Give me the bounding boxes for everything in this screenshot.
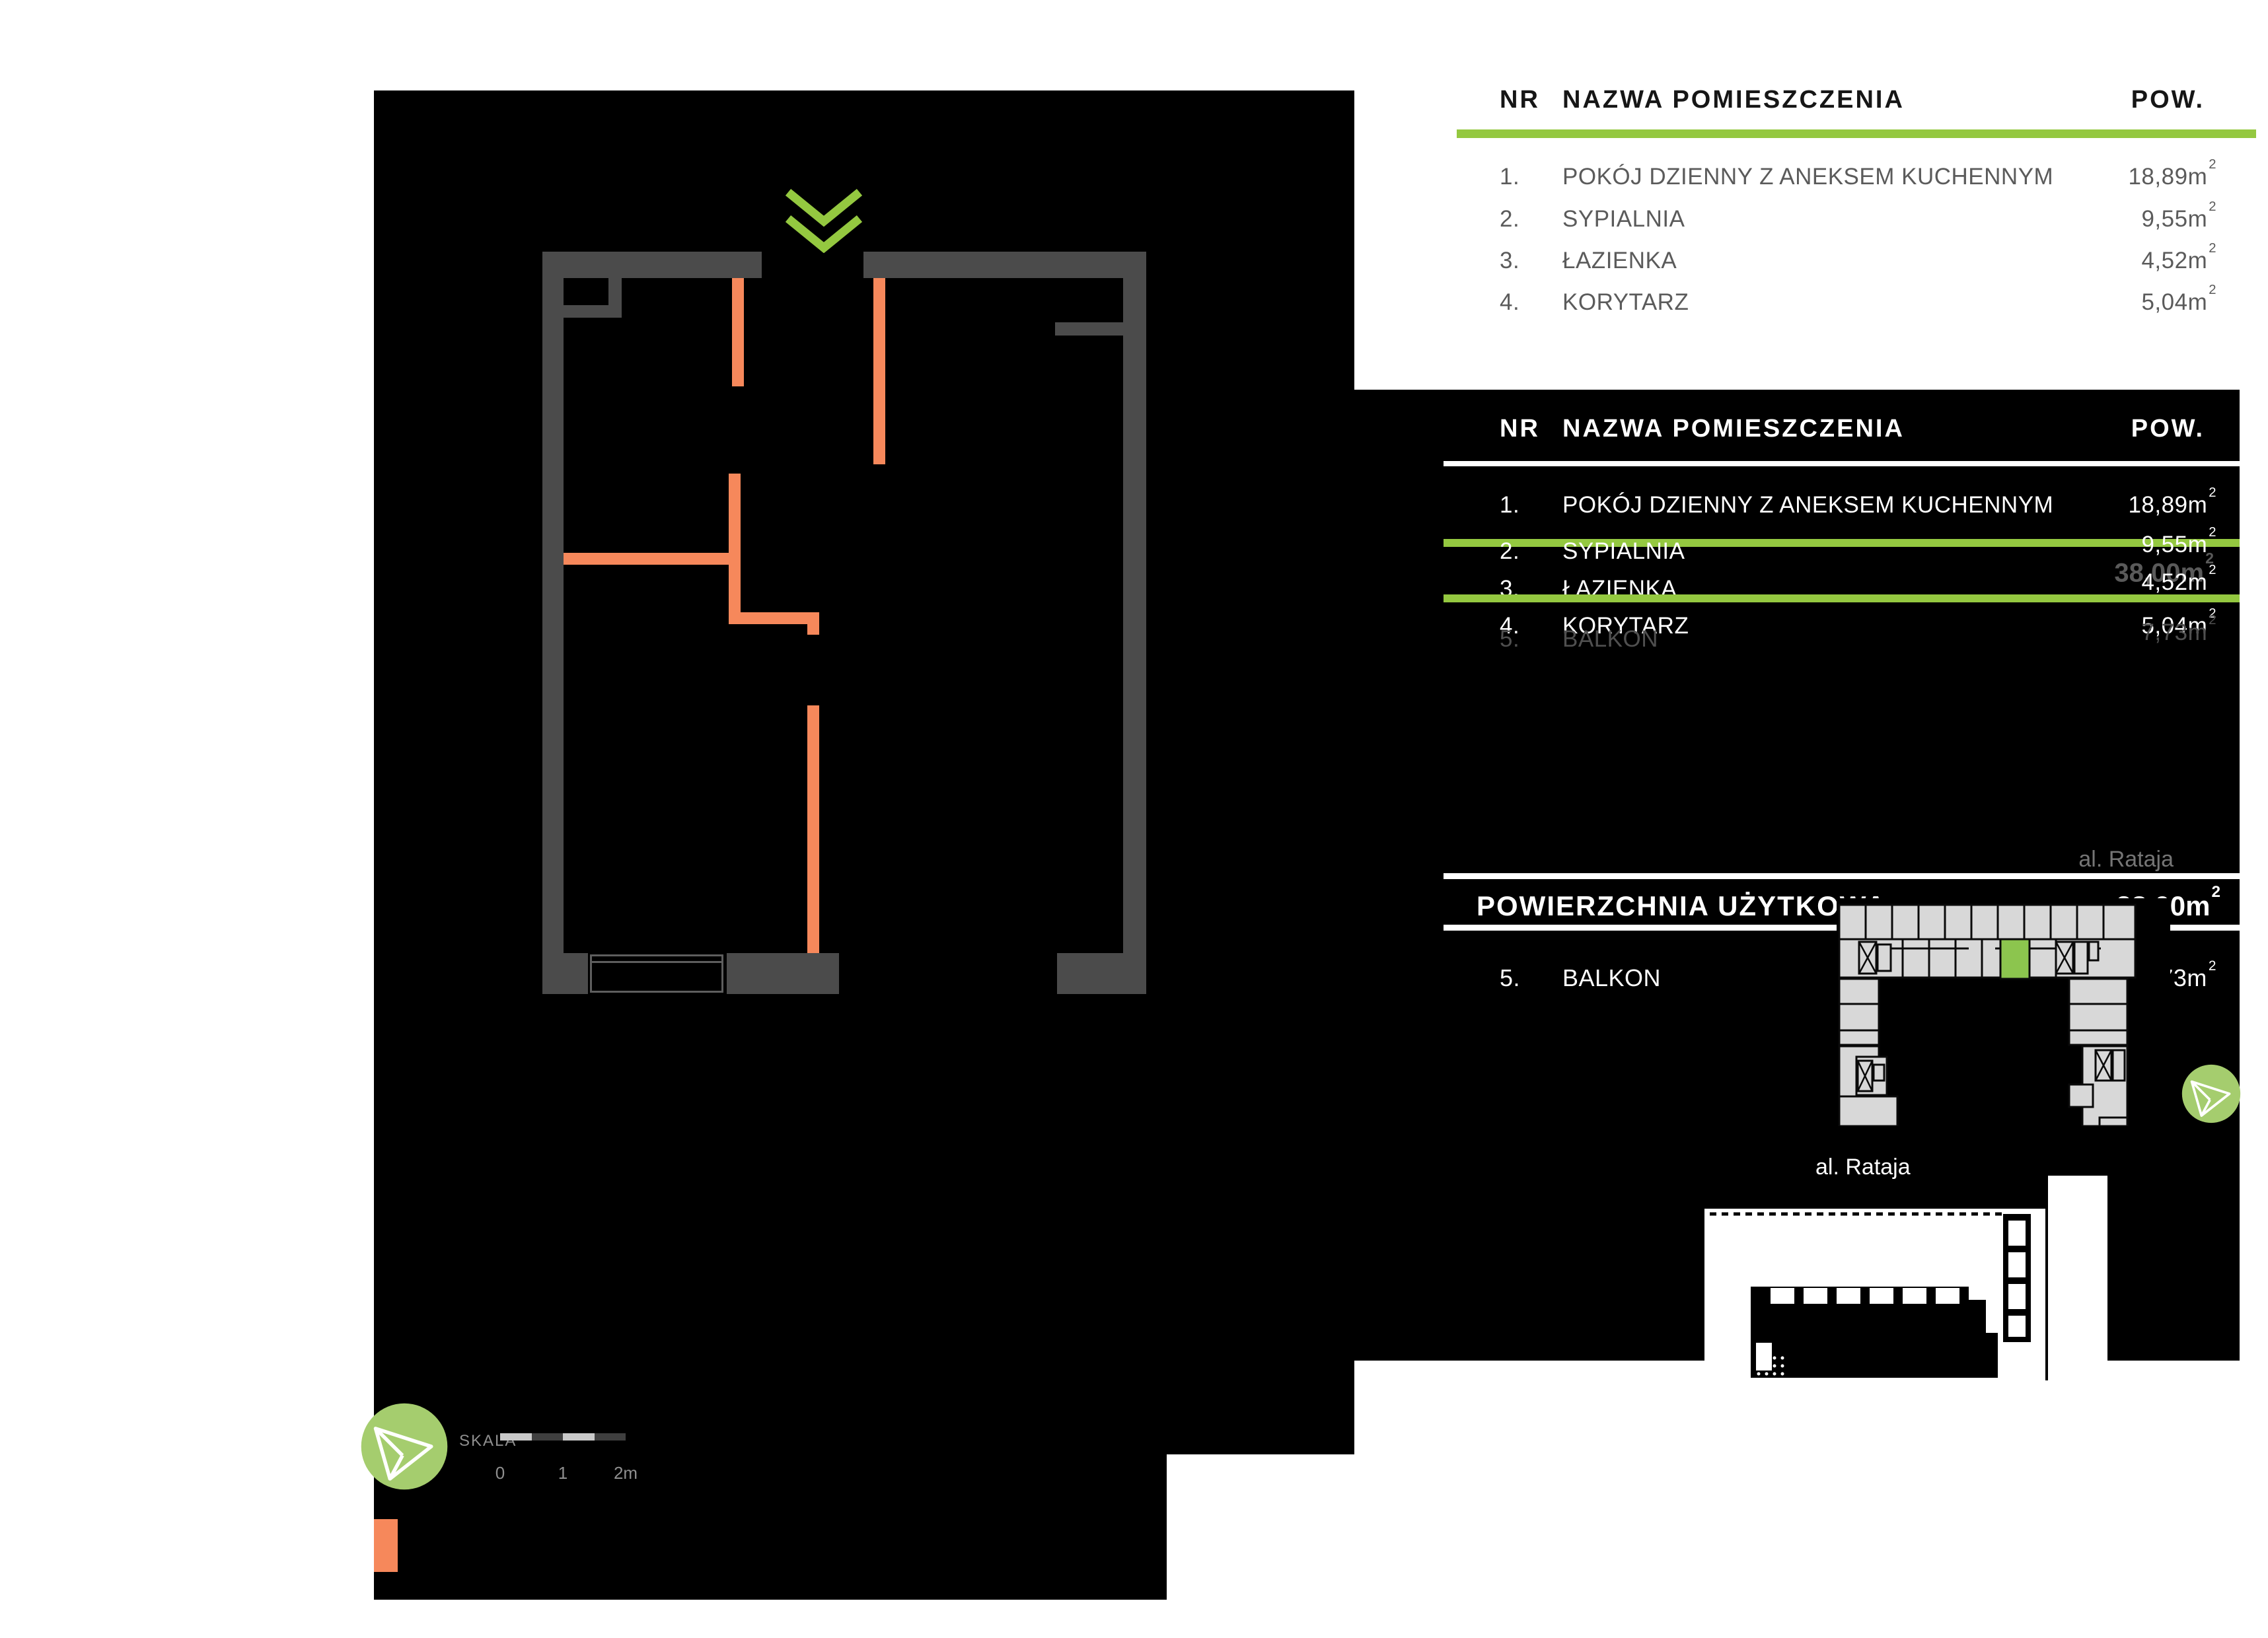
row-area: 18,89m2 (2128, 164, 2216, 190)
row-nr: 3. (1500, 248, 1519, 274)
window-frame-line (592, 961, 721, 963)
overlay-col-name: NAZWA POMIESZCZENIA (1562, 415, 1905, 443)
street-label-top: al. Rataja (1982, 847, 2174, 872)
overlay-header: NR NAZWA POMIESZCZENIA POW. (1500, 415, 2216, 445)
shaft-right-bar (1055, 322, 1123, 336)
site-minimap-bottom[interactable] (1704, 1201, 2048, 1380)
row-nr: 1. (1500, 164, 1519, 190)
row-name: POKÓJ DZIENNY Z ANEKSEM KUCHENNYM (1562, 492, 2053, 518)
street-label-bottom: al. Rataja (1815, 1155, 1911, 1180)
wall-right (1123, 252, 1146, 994)
row-name: BALKON (1562, 626, 1658, 653)
overlay-header-underline (1444, 461, 2240, 466)
row-nr: 5. (1500, 964, 1520, 992)
row-nr: 4. (1500, 289, 1519, 316)
overlay-ghost-row-balkon: 5. BALKON 7,73m2 (1500, 626, 2216, 657)
legend-row-3: 3. ŁAZIENKA 4,52m2 (1500, 248, 2216, 278)
scale-tick-1: 1 (558, 1463, 567, 1483)
partition-corridor-horiz (729, 612, 819, 624)
wall-top-right (863, 252, 1146, 278)
partition-living-vert (807, 705, 819, 953)
row-name: SYPIALNIA (1562, 206, 1685, 232)
wall-bottom-right (1057, 953, 1123, 994)
usable-area-label: POWIERZCHNIA UŻYTKOWA (1477, 890, 1887, 922)
wall-top-left (542, 252, 762, 278)
wall-left (542, 252, 564, 994)
legend-orange-swatch (374, 1519, 398, 1572)
legend-col-nr: NR (1500, 86, 1540, 114)
legend-row-1: 1. POKÓJ DZIENNY Z ANEKSEM KUCHENNYM 18,… (1500, 164, 2216, 194)
overlay-row-1[interactable]: 1. POKÓJ DZIENNY Z ANEKSEM KUCHENNYM 18,… (1500, 492, 2216, 522)
hover-line-2 (1444, 594, 2240, 602)
partition-door-stub (807, 624, 819, 635)
entrance-chevron-icon (783, 187, 865, 253)
partition-wardrobe (732, 278, 744, 386)
row-nr: 5. (1500, 626, 1519, 653)
overlay-col-nr: NR (1500, 415, 1540, 443)
minimap-road-gap (2048, 1176, 2107, 1361)
row-name: ŁAZIENKA (1562, 248, 1677, 274)
row-area: 7,73m2 (2141, 620, 2216, 646)
site-minimap-top[interactable] (1837, 898, 2170, 1126)
balcony-window-symbol (590, 954, 723, 993)
minimap-selected-unit (2000, 939, 2030, 979)
scale-seg-2 (532, 1433, 563, 1441)
wall-bottom-left (542, 953, 588, 994)
row-area: 4,52m2 (2141, 569, 2216, 596)
row-nr: 2. (1500, 206, 1519, 232)
legend-row-4: 4. KORYTARZ 5,04m2 (1500, 289, 2216, 320)
scale-seg-3 (563, 1433, 595, 1441)
legend-header: NR NAZWA POMIESZCZENIA POW. (1500, 86, 2216, 116)
partition-bath-horiz (564, 553, 741, 565)
partition-bath-vert (729, 474, 741, 624)
compass-button-left[interactable] (359, 1402, 449, 1491)
scale-tick-0: 0 (495, 1463, 505, 1483)
compass-button-right[interactable] (2181, 1063, 2242, 1124)
scale-seg-4 (595, 1433, 626, 1441)
floorplan-panel-bg (374, 90, 1167, 1600)
row-area: 4,52m2 (2141, 248, 2216, 274)
legend-col-name: NAZWA POMIESZCZENIA (1562, 86, 1905, 114)
overlay-col-area: POW. (2131, 415, 2205, 443)
shaft-left-bar (562, 305, 622, 318)
partition-bedroom-vert (873, 278, 885, 464)
scale-bar (500, 1433, 626, 1441)
legend-header-underline (1457, 129, 2256, 138)
legend-row-2: 2. SYPIALNIA 9,55m2 (1500, 206, 2216, 236)
legend-col-area: POW. (2131, 86, 2205, 114)
row-name: BALKON (1562, 964, 1661, 992)
row-area: 18,89m2 (2128, 492, 2216, 518)
scale-seg-1 (500, 1433, 532, 1441)
row-area: 9,55m2 (2141, 206, 2216, 232)
mid-panel-bg (1167, 90, 1354, 1454)
row-name: KORYTARZ (1562, 289, 1689, 316)
row-area: 5,04m2 (2141, 289, 2216, 316)
floorplan-viewer: NR NAZWA POMIESZCZENIA POW. 1. POKÓJ DZI… (0, 0, 2268, 1638)
summary-line-top (1444, 873, 2240, 879)
wall-bottom-mid (727, 953, 839, 994)
scale-tick-2: 2m (614, 1463, 638, 1483)
row-nr: 1. (1500, 492, 1519, 518)
scale-ticks: 0 1 2m (500, 1463, 626, 1487)
row-name: POKÓJ DZIENNY Z ANEKSEM KUCHENNYM (1562, 164, 2053, 190)
